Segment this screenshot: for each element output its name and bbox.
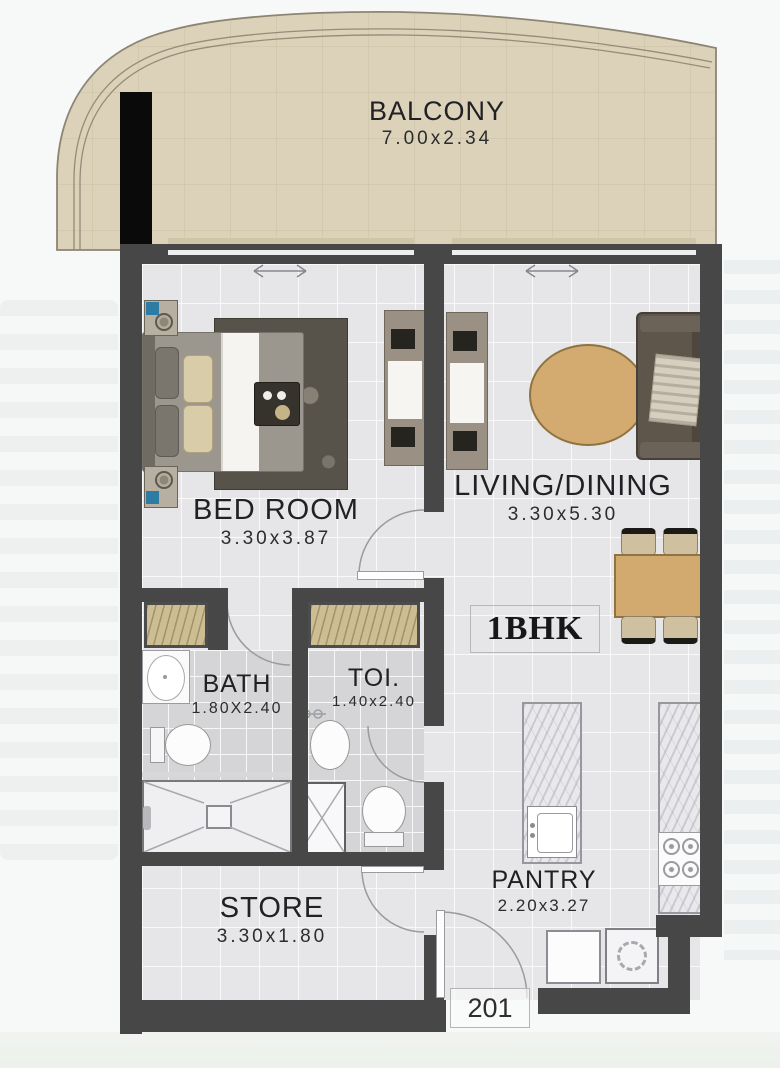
wall-closet-stub xyxy=(208,600,228,650)
balcony-door-glass-left xyxy=(168,250,414,255)
door-leaf-entry xyxy=(436,910,445,998)
sliding-door-arrow-bedroom-icon xyxy=(254,265,306,277)
room-name: LIVING/DINING xyxy=(454,470,672,503)
wall-bedroom-bath-right xyxy=(292,588,424,602)
floor-plan: BALCONY 7.00x2.34 BED ROOM 3.30x3.87 LIV… xyxy=(0,0,780,1068)
room-dimensions: 7.00x2.34 xyxy=(369,127,505,151)
wall-partition-toilet-upper xyxy=(424,604,444,726)
balcony-door-glass-right xyxy=(452,250,696,255)
structural-column xyxy=(120,92,152,264)
wall-partition-toilet-lower xyxy=(424,782,444,870)
room-dimensions: 1.40x2.40 xyxy=(332,693,416,712)
balcony-door-frame-right xyxy=(452,238,696,244)
store-label: STORE 3.30x1.80 xyxy=(217,892,327,949)
room-name: STORE xyxy=(217,892,327,925)
wall-bottom-left xyxy=(120,1000,446,1032)
door-arc-store xyxy=(362,870,424,932)
plan-symbols-overlay xyxy=(0,0,780,1068)
room-dimensions: 3.30x5.30 xyxy=(454,503,672,527)
door-leaf-store xyxy=(361,866,424,873)
room-name: BED ROOM xyxy=(193,494,359,527)
balcony-door-frame-left xyxy=(168,238,414,244)
pantry-label: PANTRY 2.20x3.27 xyxy=(491,866,596,916)
wall-right xyxy=(700,244,722,937)
wall-step-vertical xyxy=(668,930,690,1014)
shower-tile-lines xyxy=(144,782,290,852)
unit-type-badge: 1BHK xyxy=(470,605,600,653)
door-arc-bedroom xyxy=(359,510,424,575)
room-name: TOI. xyxy=(332,664,416,693)
room-dimensions: 3.30x3.87 xyxy=(193,527,359,551)
bath-label: BATH 1.80X2.40 xyxy=(192,670,283,719)
door-arc-entry xyxy=(441,912,527,998)
door-leaf-bedroom xyxy=(357,571,424,580)
wall-bath-toilet xyxy=(292,588,308,866)
wall-partition-upper xyxy=(424,262,444,512)
room-dimensions: 1.80X2.40 xyxy=(192,699,283,719)
room-name: PANTRY xyxy=(491,866,596,895)
bedroom-label: BED ROOM 3.30x3.87 xyxy=(193,494,359,551)
door-arc-toilet xyxy=(368,726,424,782)
wall-left xyxy=(120,244,142,1034)
balcony-label: BALCONY 7.00x2.34 xyxy=(369,96,505,151)
unit-number-badge: 201 xyxy=(450,988,530,1028)
living-dining-label: LIVING/DINING 3.30x5.30 xyxy=(454,470,672,527)
toilet-label: TOI. 1.40x2.40 xyxy=(332,664,416,712)
wall-store-top xyxy=(142,852,424,866)
door-arc-bath xyxy=(227,602,290,665)
room-name: BALCONY xyxy=(369,96,505,127)
room-name: BATH xyxy=(192,670,283,699)
room-dimensions: 3.30x1.80 xyxy=(217,925,327,949)
wall-partition-stub xyxy=(424,578,444,604)
sliding-door-arrow-living-icon xyxy=(526,265,578,277)
room-dimensions: 2.20x3.27 xyxy=(491,895,596,916)
